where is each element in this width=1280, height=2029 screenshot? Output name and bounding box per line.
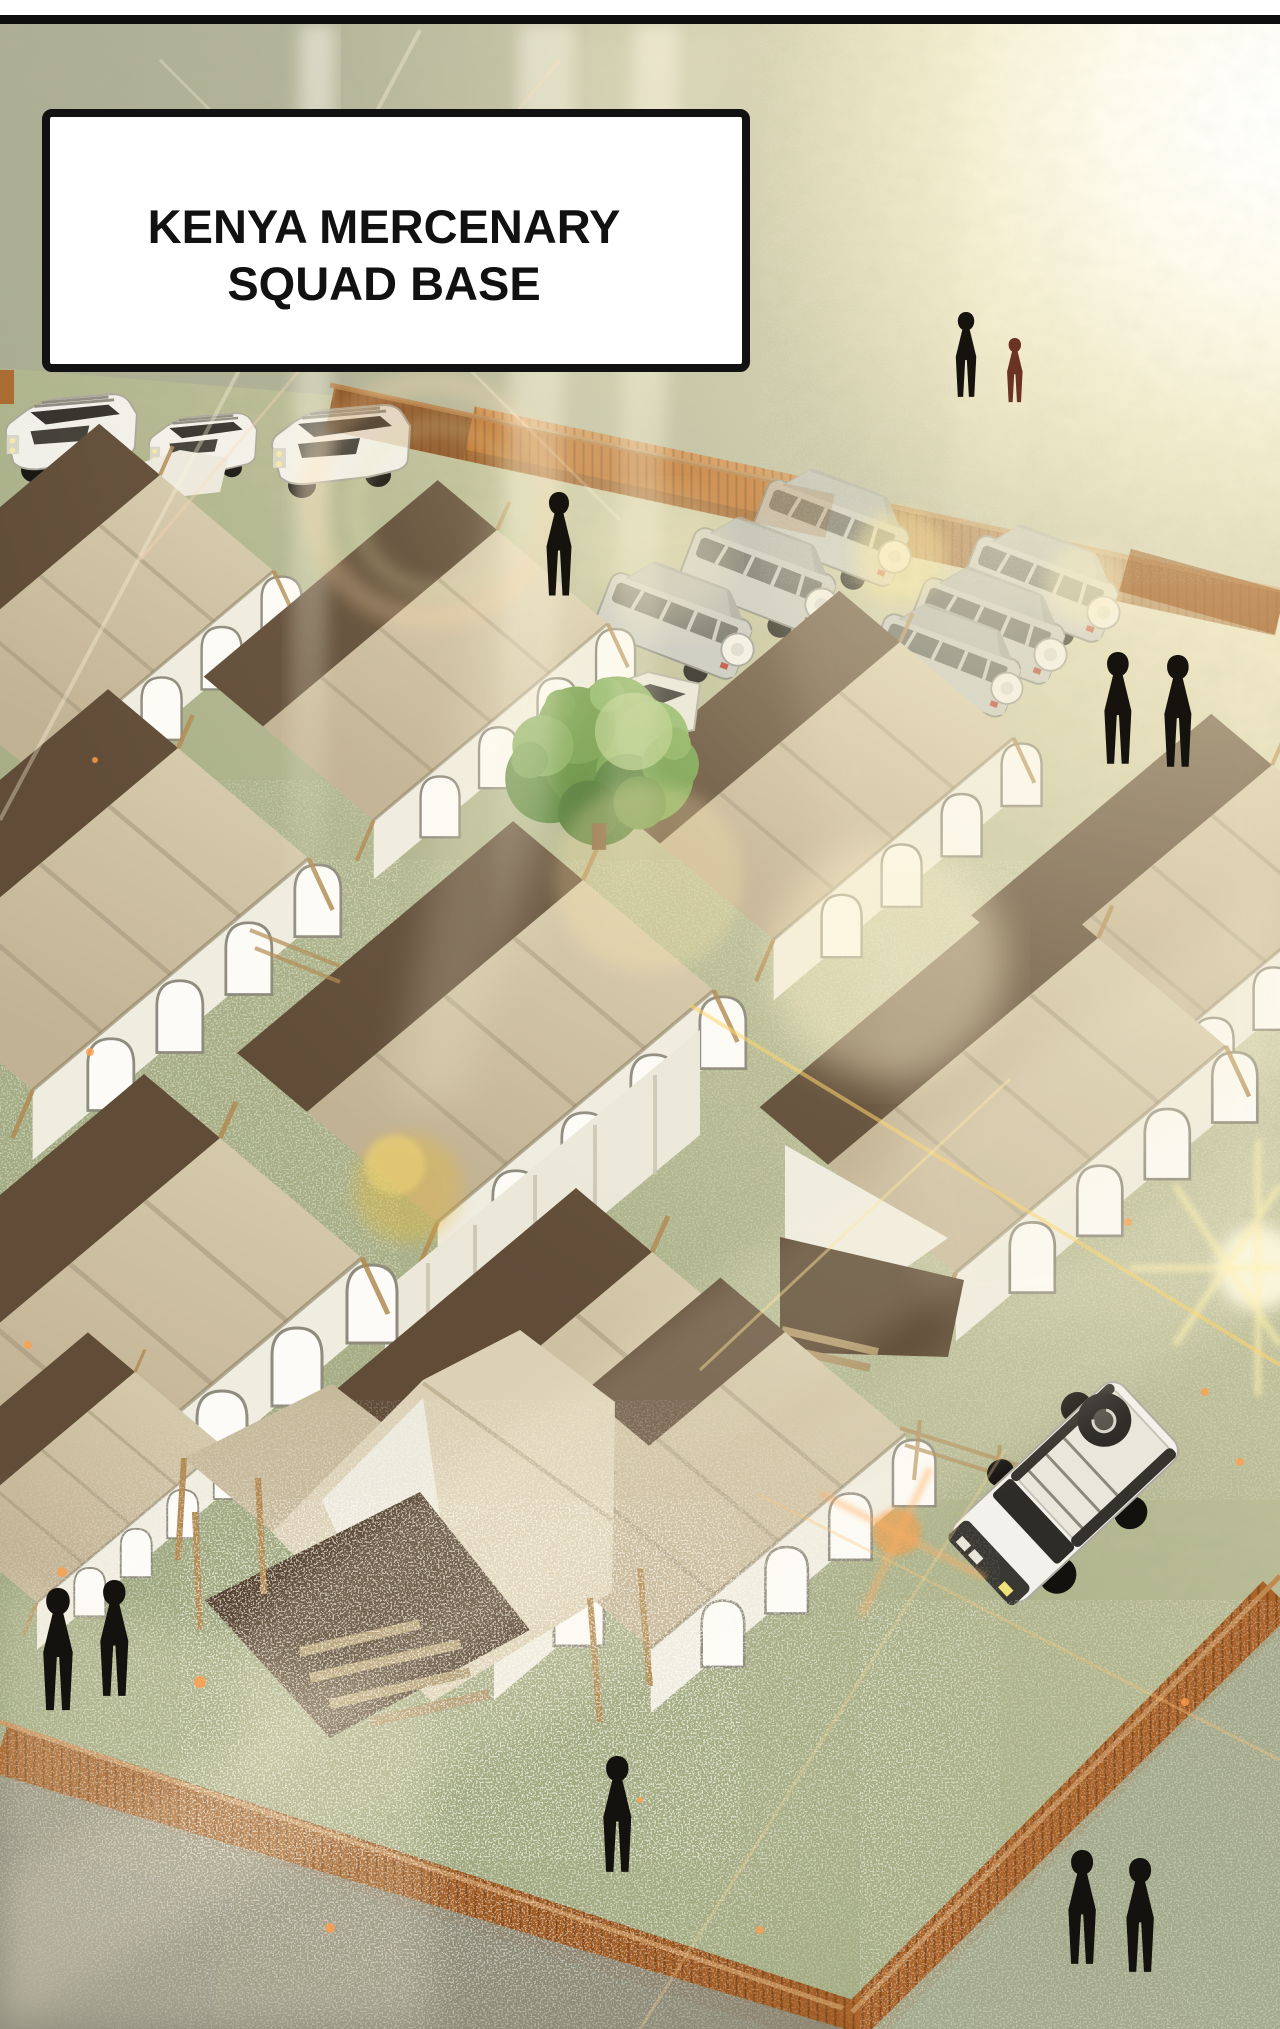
svg-text:SQUAD BASE: SQUAD BASE — [227, 257, 540, 310]
svg-text:KENYA MERCENARY: KENYA MERCENARY — [148, 200, 621, 253]
